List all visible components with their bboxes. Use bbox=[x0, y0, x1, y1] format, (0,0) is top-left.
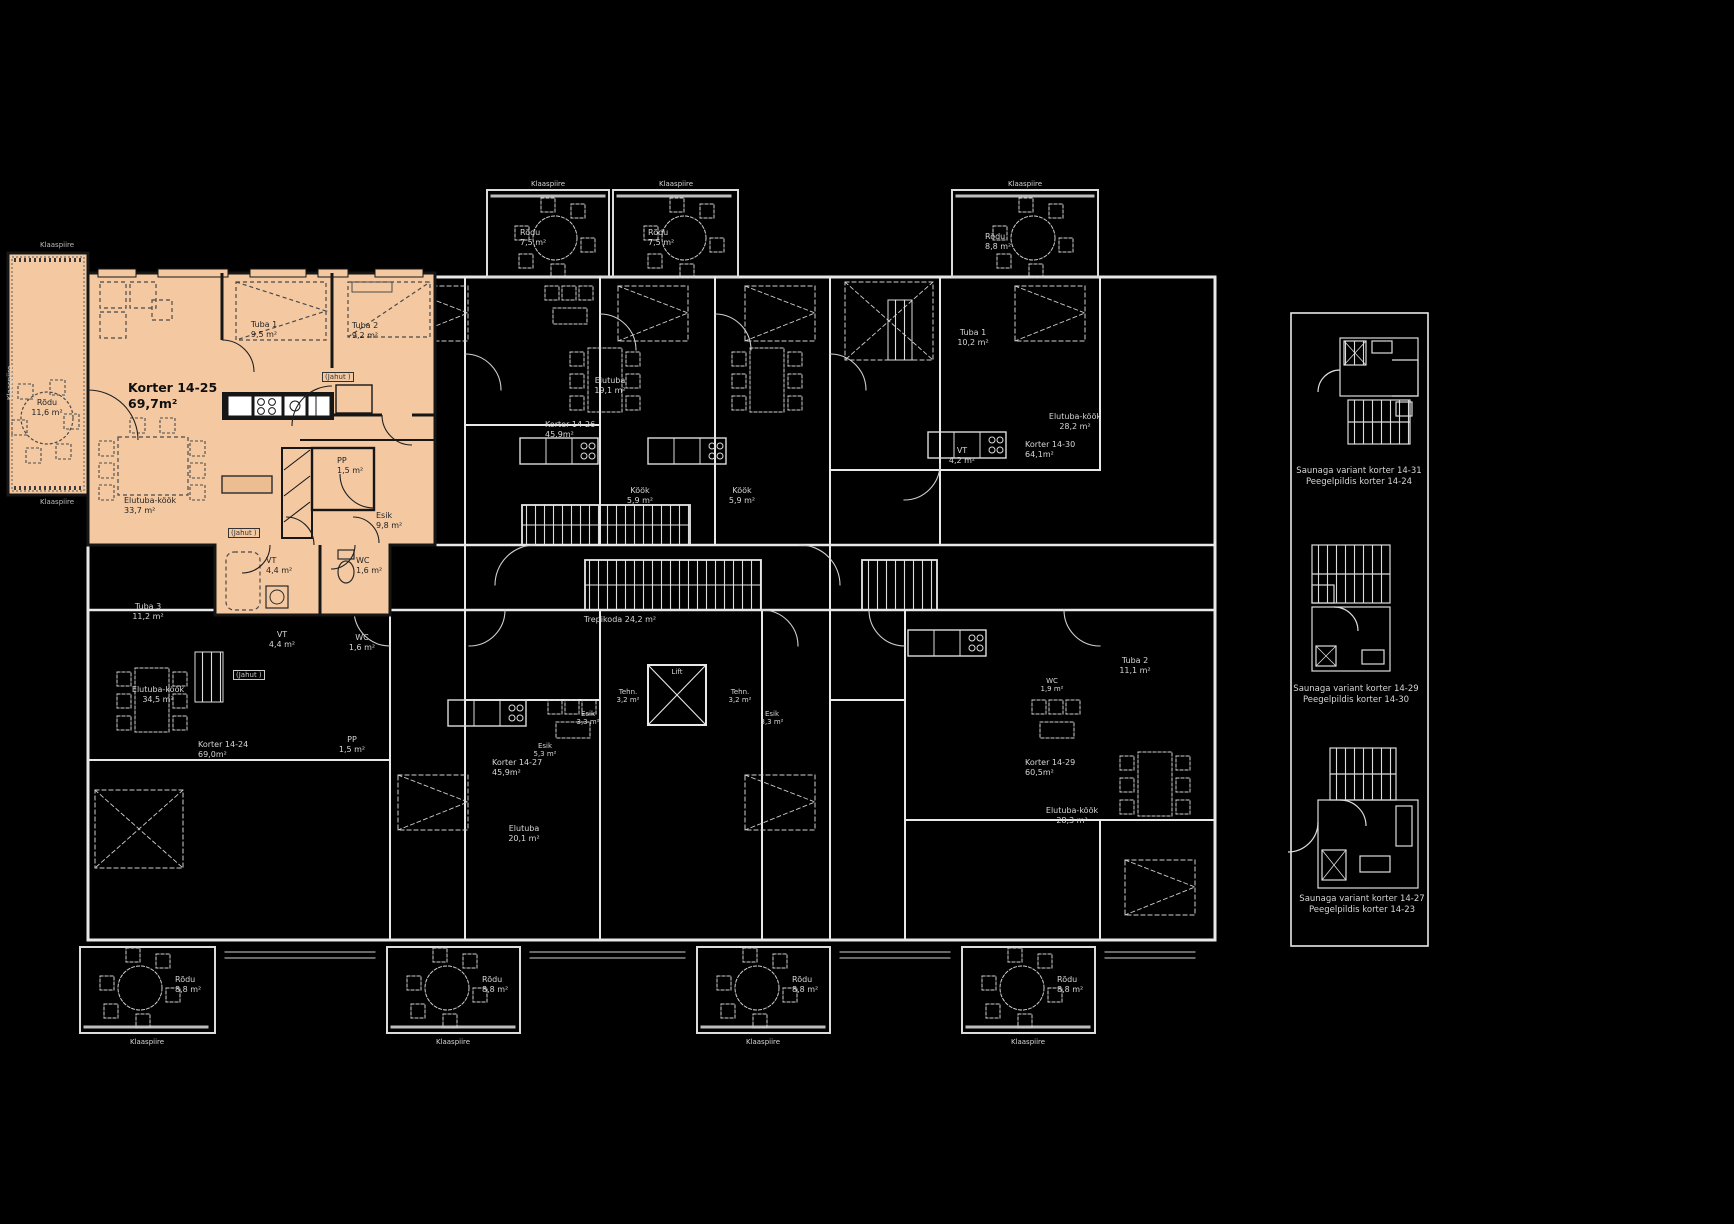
label-korter-14-26: Korter 14-2645,9m² bbox=[545, 420, 595, 439]
room-label-vt: VT4,4 m² bbox=[266, 556, 292, 575]
klaaspiire-bottom-2: Klaaspiire bbox=[436, 1038, 470, 1046]
rodu-top-1: Rõdu7,5 m² bbox=[520, 228, 546, 247]
variant-caption-2: Saunaga variant korter 14-29Peegelpildis… bbox=[1293, 684, 1418, 707]
rodu-bottom-3: Rõdu8,8 m² bbox=[792, 975, 818, 994]
rodu-top-2: Rõdu7,5 m² bbox=[648, 228, 674, 247]
room-label-tuba1: Tuba 19,5 m² bbox=[251, 320, 277, 339]
rodu-bottom-2: Rõdu8,8 m² bbox=[482, 975, 508, 994]
label-korter-14-27: Korter 14-2745,9m² bbox=[492, 758, 542, 777]
label-esik-33b: Esik3,3 m² bbox=[761, 710, 784, 727]
klaaspiire-left-top: Klaaspiire bbox=[40, 241, 74, 249]
label-kook-1: Köök5,9 m² bbox=[627, 486, 653, 505]
klaaspiire-bottom-3: Klaaspiire bbox=[746, 1038, 780, 1046]
label-tuba1-102: Tuba 110,2 m² bbox=[957, 328, 988, 347]
label-tehn-2: Tehn.3,2 m² bbox=[729, 688, 752, 705]
label-elutuba-201: Elutuba20,1 m² bbox=[508, 824, 539, 843]
room-label-rodu: Rõdu11,6 m² bbox=[31, 398, 62, 417]
klaaspiire-top-1: Klaaspiire bbox=[531, 180, 565, 188]
jahut-tag-2: (Jahut ) bbox=[228, 528, 260, 538]
label-wc-16: WC1,6 m² bbox=[349, 633, 375, 652]
sauna-variants-panel bbox=[1288, 313, 1428, 946]
label-esik-33a: Esik3,3 m² bbox=[577, 710, 600, 727]
floor-plan-page: Korter 14-25 69,7m² Rõdu11,6 m² Tuba 19,… bbox=[0, 0, 1734, 1224]
label-tuba2-111: Tuba 211,1 m² bbox=[1119, 656, 1150, 675]
klaaspiire-top-2: Klaaspiire bbox=[659, 180, 693, 188]
klaaspiire-bottom-1: Klaaspiire bbox=[130, 1038, 164, 1046]
klaaspiire-left-vertical: Klaaspiire bbox=[6, 366, 14, 400]
label-tehn-1: Tehn.3,2 m² bbox=[617, 688, 640, 705]
floor-plan-canvas bbox=[0, 0, 1734, 1224]
label-tuba3-112: Tuba 311,2 m² bbox=[132, 602, 163, 621]
label-kook-2: Köök5,9 m² bbox=[729, 486, 755, 505]
label-elutuba-kook-345: Elutuba-köök34,5 m² bbox=[132, 685, 184, 704]
label-lift: Lift bbox=[672, 668, 683, 676]
klaaspiire-bottom-4: Klaaspiire bbox=[1011, 1038, 1045, 1046]
unit-title[interactable]: Korter 14-25 69,7m² bbox=[128, 380, 217, 411]
rodu-top-3: Rõdu8,8 m² bbox=[985, 232, 1011, 251]
variant-caption-1: Saunaga variant korter 14-31Peegelpildis… bbox=[1296, 466, 1421, 489]
label-pp-15: PP1,5 m² bbox=[339, 735, 365, 754]
klaaspiire-left-bottom: Klaaspiire bbox=[40, 498, 74, 506]
room-label-esik: Esik9,8 m² bbox=[376, 511, 402, 530]
label-esik-53: Esik5,3 m² bbox=[534, 742, 557, 759]
variant-caption-3: Saunaga variant korter 14-27Peegelpildis… bbox=[1299, 894, 1424, 917]
label-trepikoda: Trepikoda 24,2 m² bbox=[584, 615, 656, 625]
room-label-wc: WC1,6 m² bbox=[356, 556, 382, 575]
klaaspiire-top-3: Klaaspiire bbox=[1008, 180, 1042, 188]
variant-diagram-1 bbox=[1318, 338, 1418, 444]
jahut-tag-3: (Jahut ) bbox=[233, 670, 265, 680]
room-label-tuba2: Tuba 29,2 m² bbox=[352, 321, 378, 340]
label-korter-14-29: Korter 14-2960,5m² bbox=[1025, 758, 1075, 777]
rodu-bottom-1: Rõdu8,8 m² bbox=[175, 975, 201, 994]
label-elutuba-191: Elutuba19,1 m² bbox=[594, 376, 625, 395]
room-label-pp: PP1,5 m² bbox=[337, 456, 363, 475]
bottom-balconies bbox=[80, 947, 1195, 1033]
label-elutuba-kook-282: Elutuba-köök28,2 m² bbox=[1049, 412, 1101, 431]
room-label-elutuba-kook: Elutuba-köök33,7 m² bbox=[124, 496, 176, 515]
label-vt-42: VT4,2 m² bbox=[949, 446, 975, 465]
variant-diagram-3 bbox=[1288, 748, 1418, 888]
label-korter-14-30: Korter 14-3064,1m² bbox=[1025, 440, 1075, 459]
label-vt-44: VT4,4 m² bbox=[269, 630, 295, 649]
label-korter-14-24: Korter 14-2469,0m² bbox=[198, 740, 248, 759]
variant-diagram-2 bbox=[1312, 545, 1390, 671]
label-wc-19: WC1,9 m² bbox=[1041, 677, 1064, 694]
jahut-tag-1: (Jahut ) bbox=[322, 372, 354, 382]
label-elutuba-kook-283: Elutuba-köök28,3 m² bbox=[1046, 806, 1098, 825]
rodu-bottom-4: Rõdu8,8 m² bbox=[1057, 975, 1083, 994]
